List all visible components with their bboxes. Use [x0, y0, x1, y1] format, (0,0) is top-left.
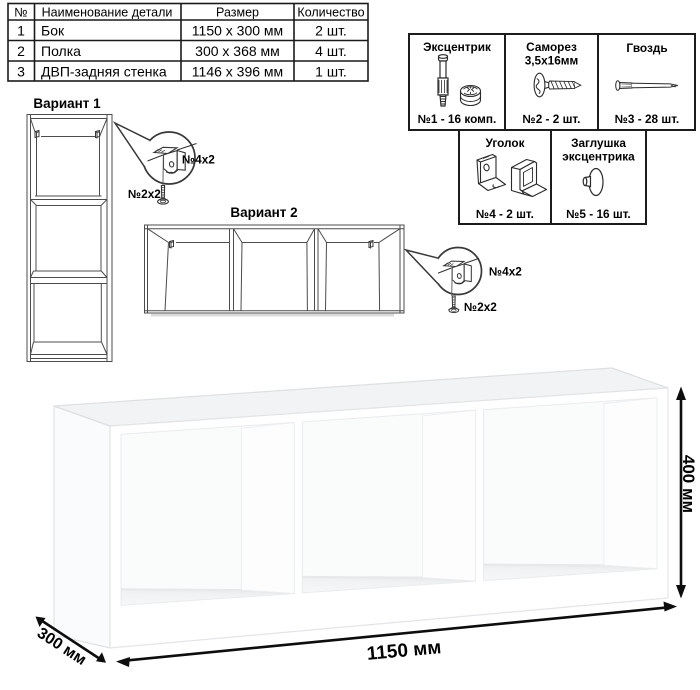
svg-text:№2х2: №2х2 [464, 300, 497, 314]
svg-text:№2 - 2 шт.: №2 - 2 шт. [523, 112, 581, 126]
svg-text:2 шт.: 2 шт. [315, 23, 347, 39]
svg-text:300 х 368 мм: 300 х 368 мм [195, 43, 280, 59]
svg-text:эксцентрика: эксцентрика [562, 150, 635, 164]
svg-text:Полка: Полка [41, 43, 81, 59]
svg-text:1150 х 300 мм: 1150 х 300 мм [192, 23, 283, 39]
svg-text:Вариант 1: Вариант 1 [33, 96, 101, 111]
svg-text:Эксцентрик: Эксцентрик [423, 40, 491, 54]
svg-text:№4 - 2 шт.: №4 - 2 шт. [476, 207, 534, 221]
svg-text:1 шт.: 1 шт. [315, 64, 347, 80]
svg-text:№4х2: №4х2 [182, 153, 215, 167]
svg-text:№1 - 16 комп.: №1 - 16 комп. [418, 112, 497, 126]
svg-text:Уголок: Уголок [485, 136, 524, 150]
svg-text:1: 1 [17, 23, 25, 39]
svg-text:№5 - 16 шт.: №5 - 16 шт. [566, 207, 630, 221]
svg-text:Наименование детали: Наименование детали [42, 6, 173, 20]
svg-text:ДВП-задняя стенка: ДВП-задняя стенка [41, 64, 167, 80]
svg-text:2: 2 [17, 43, 25, 59]
svg-text:Заглушка: Заглушка [571, 136, 626, 150]
svg-text:№4х2: №4х2 [489, 265, 522, 279]
svg-text:Вариант 2: Вариант 2 [230, 205, 297, 220]
svg-text:Гвоздь: Гвоздь [626, 41, 667, 55]
svg-text:3,5х16мм: 3,5х16мм [525, 54, 579, 68]
svg-text:Саморез: Саморез [526, 40, 577, 54]
svg-text:3: 3 [17, 64, 25, 80]
svg-text:Количество: Количество [297, 6, 364, 20]
svg-text:1150 мм: 1150 мм [366, 637, 442, 665]
svg-text:400 мм: 400 мм [679, 455, 698, 513]
svg-text:№2х2: №2х2 [128, 187, 161, 201]
svg-text:4 шт.: 4 шт. [315, 43, 347, 59]
svg-text:№3 - 28 шт.: №3 - 28 шт. [615, 112, 679, 126]
svg-text:1146 х 396 мм: 1146 х 396 мм [192, 64, 283, 80]
svg-text:Бок: Бок [41, 23, 65, 39]
svg-text:Размер: Размер [216, 6, 259, 20]
svg-text:№: № [14, 6, 27, 20]
